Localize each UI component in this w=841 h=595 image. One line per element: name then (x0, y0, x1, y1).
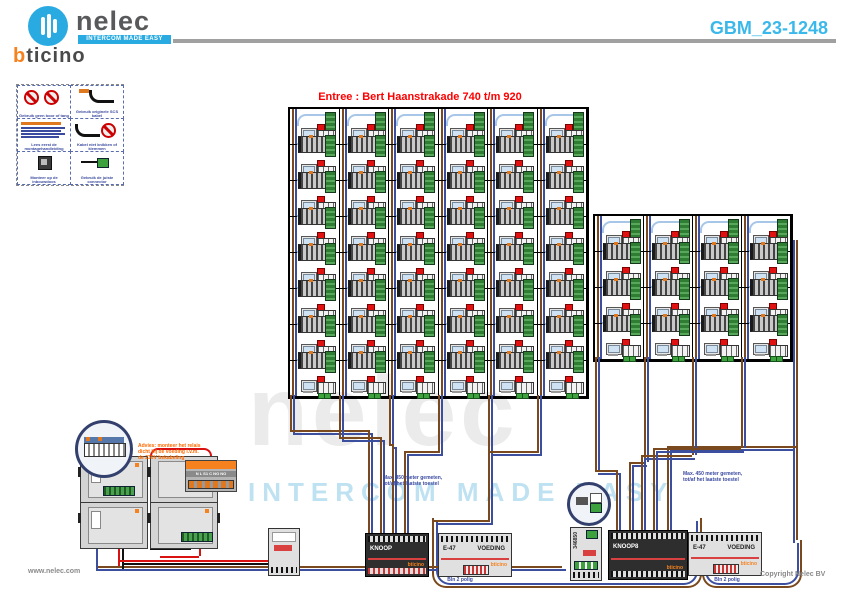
unit-pcb (573, 171, 584, 193)
unit-pcb (474, 315, 485, 337)
partner-brand-b: b (13, 45, 26, 67)
riser-wire-blue (394, 253, 396, 288)
floor-distributor (701, 315, 731, 332)
riser-wire-blue (543, 181, 545, 216)
power-supply-unit-3 (80, 502, 148, 549)
website-link: www.nelec.com (28, 568, 80, 575)
unit-pcb (325, 279, 336, 301)
floor-distributor (298, 280, 328, 297)
riser-wire-brown (441, 361, 443, 396)
monitor-base (402, 391, 412, 393)
partner-brand-rest: ticino (26, 45, 85, 67)
unit-pcb (573, 243, 584, 265)
monitor-screen (706, 345, 718, 353)
riser-wire-brown (292, 145, 294, 180)
legend-cell-no-kink: Kabel niet knikken of klemmen (70, 118, 124, 152)
riser-wire-brown (292, 217, 294, 252)
floor-distributor (701, 279, 731, 296)
riser-wire-blue (698, 324, 700, 359)
riser-wire-brown (391, 289, 393, 324)
unit-pcb (474, 279, 485, 301)
riser-wire-brown (597, 252, 599, 287)
riser-wire-brown (342, 181, 344, 216)
riser-wire-blue (493, 289, 495, 324)
nelec-logo-icon (28, 6, 68, 46)
unit-pcb (523, 135, 534, 157)
riser-wire-brown (342, 325, 344, 360)
green-terminal (473, 393, 480, 399)
monitor-base (608, 354, 618, 356)
riser-wire-brown (292, 253, 294, 288)
riser-wire-blue (543, 109, 545, 144)
unit-pcb (728, 278, 739, 300)
riser-wire-blue (698, 252, 700, 287)
floor-distributor (298, 172, 328, 189)
riser-wire-blue (295, 289, 297, 324)
unit-pcb (424, 207, 435, 229)
riser-wire-blue (345, 325, 347, 360)
riser-wire-blue (345, 289, 347, 324)
din-module-346850: 346850 (570, 527, 602, 581)
apartment-grid-left (288, 107, 589, 399)
green-terminal (423, 393, 430, 399)
unit-pcb (375, 351, 386, 373)
monitor-base (706, 354, 716, 356)
floor-distributor (447, 244, 477, 261)
riser-wire-blue (394, 289, 396, 324)
riser-wire-brown (441, 217, 443, 252)
unit-pcb (679, 314, 690, 336)
riser-wire-brown (646, 324, 648, 359)
floor-distributor (652, 243, 682, 260)
floor-distributor (348, 244, 378, 261)
riser-wire-brown (342, 217, 344, 252)
riser-wire-brown (292, 361, 294, 396)
riser-wire-brown (490, 217, 492, 252)
unit-pcb (523, 279, 534, 301)
floor-distributor (447, 172, 477, 189)
monitor-base (501, 391, 511, 393)
floor-distributor (496, 208, 526, 225)
riser-wire-brown (540, 361, 542, 396)
floor-distributor (397, 280, 427, 297)
riser-wire-blue (543, 289, 545, 324)
riser-wire-brown (490, 109, 492, 144)
apartment-grid-right (593, 214, 793, 362)
legend-cell-cable: Gebruik originele SCS kabel (70, 85, 124, 119)
riser-wire-brown (540, 145, 542, 180)
floor-distributor (348, 316, 378, 333)
riser-wire-brown (342, 145, 344, 180)
intercom-unit-cell (340, 361, 390, 397)
unit-pcb (375, 315, 386, 337)
floor-distributor (298, 244, 328, 261)
unit-pcb (325, 243, 336, 265)
unit-pcb (474, 351, 485, 373)
floor-distributor (652, 315, 682, 332)
intercom-unit-cell (595, 324, 644, 360)
intercom-unit-cell (538, 361, 588, 397)
e47-voeding-module-left: E-47 VOEDING bticino (438, 533, 512, 577)
floor-distributor (496, 136, 526, 153)
riser-wire-brown (540, 217, 542, 252)
riser-wire-brown (744, 252, 746, 287)
riser-wire-blue (649, 216, 651, 251)
riser-wire-brown (391, 145, 393, 180)
riser-wire-brown (292, 109, 294, 144)
unit-pcb (523, 207, 534, 229)
unit-pcb (777, 278, 788, 300)
riser-wire-brown (292, 181, 294, 216)
unit-pcb (679, 242, 690, 264)
riser-wire-blue (444, 181, 446, 216)
riser-wire-brown (744, 288, 746, 323)
riser-wire-brown (292, 325, 294, 360)
riser-wire-blue (295, 109, 297, 144)
floor-distributor (397, 136, 427, 153)
unit-pcb (424, 135, 435, 157)
riser-wire-blue (394, 145, 396, 180)
floor-distributor (546, 280, 576, 297)
riser-wire-brown (744, 324, 746, 359)
riser-wire-brown (490, 289, 492, 324)
floor-distributor (298, 352, 328, 369)
monitor-screen (303, 382, 315, 390)
floor-distributor (397, 316, 427, 333)
unit-pcb (424, 315, 435, 337)
unit-pcb (523, 315, 534, 337)
riser-wire-blue (394, 361, 396, 396)
riser-wire-brown (490, 361, 492, 396)
riser-wire-brown (391, 181, 393, 216)
riser-wire-brown (597, 216, 599, 251)
unit-pcb (728, 242, 739, 264)
unit-pcb (375, 171, 386, 193)
legend-cell-manual: Lees eerst de montagehandleiding (17, 118, 71, 152)
riser-wire-blue (444, 109, 446, 144)
intercom-unit-cell (693, 324, 742, 360)
floor-distributor (348, 136, 378, 153)
unit-pcb (375, 243, 386, 265)
riser-wire-blue (747, 288, 749, 323)
din-module-small (268, 528, 300, 576)
riser-wire-blue (295, 361, 297, 396)
monitor-screen (608, 345, 620, 353)
unit-pcb (523, 171, 534, 193)
riser-wire-blue (600, 252, 602, 287)
riser-wire-brown (540, 325, 542, 360)
unit-pcb (523, 351, 534, 373)
monitor-screen (353, 382, 365, 390)
riser-wire-blue (295, 253, 297, 288)
floor-distributor (603, 315, 633, 332)
riser-wire-blue (444, 145, 446, 180)
floor-distributor (496, 316, 526, 333)
riser-wire-brown (342, 289, 344, 324)
floor-distributor (701, 243, 731, 260)
unit-pcb (325, 207, 336, 229)
riser-wire-blue (493, 109, 495, 144)
e47-voeding-module-right: E-47 VOEDING bticino (688, 532, 762, 576)
unit-pcb (728, 314, 739, 336)
unit-pcb (679, 278, 690, 300)
unit-pcb (375, 279, 386, 301)
floor-distributor (546, 352, 576, 369)
unit-pcb (573, 351, 584, 373)
unit-pcb (630, 314, 641, 336)
riser-wire-brown (441, 145, 443, 180)
monitor-base (551, 391, 561, 393)
unit-pcb (474, 135, 485, 157)
intercom-unit-cell (290, 361, 340, 397)
unit-pcb (474, 171, 485, 193)
riser-wire-blue (295, 181, 297, 216)
riser-wire-blue (649, 252, 651, 287)
copyright-text: Copyright Nelec BV (760, 571, 825, 578)
riser-wire-blue (747, 216, 749, 251)
unit-pcb (424, 279, 435, 301)
riser-wire-brown (744, 216, 746, 251)
intercom-unit-cell (439, 361, 489, 397)
riser-wire-blue (493, 361, 495, 396)
floor-distributor (397, 352, 427, 369)
relay-terminal-labels: N L S1 C NO NO (186, 471, 236, 477)
riser-wire-blue (345, 217, 347, 252)
unit-pcb (375, 135, 386, 157)
monitor-base (657, 354, 667, 356)
riser-length-note-left: Max. 450 meter gemeten,tot/af het laatst… (383, 475, 442, 487)
floor-distributor (348, 172, 378, 189)
floor-distributor (496, 172, 526, 189)
green-terminal (374, 393, 381, 399)
riser-wire-blue (543, 253, 545, 288)
riser-wire-blue (394, 325, 396, 360)
floor-distributor (652, 279, 682, 296)
riser-wire-blue (295, 145, 297, 180)
unit-pcb (424, 171, 435, 193)
unit-pcb (573, 207, 584, 229)
brand-tagline: INTERCOM MADE EASY (78, 35, 171, 44)
floor-distributor (496, 280, 526, 297)
riser-wire-brown (490, 253, 492, 288)
riser-wire-blue (747, 252, 749, 287)
riser-wire-blue (345, 253, 347, 288)
floor-distributor (546, 244, 576, 261)
riser-wire-blue (345, 109, 347, 144)
unit-pcb (424, 243, 435, 265)
floor-distributor (348, 208, 378, 225)
riser-length-note-right: Max. 450 meter gemeten,tot/af het laatst… (683, 471, 742, 483)
riser-wire-brown (342, 253, 344, 288)
riser-wire-blue (394, 109, 396, 144)
floor-distributor (546, 208, 576, 225)
riser-wire-blue (444, 325, 446, 360)
floor-distributor (750, 279, 780, 296)
legend-cell-no-tools: Gebruik geen boor of tang (17, 85, 71, 119)
floor-distributor (750, 243, 780, 260)
installation-legend: Gebruik geen boor of tang Gebruik origin… (16, 84, 124, 186)
floor-distributor (447, 280, 477, 297)
riser-wire-brown (441, 253, 443, 288)
floor-distributor (447, 352, 477, 369)
floor-distributor (397, 172, 427, 189)
riser-wire-brown (391, 361, 393, 396)
drawing-title: Entree : Bert Haanstrakade 740 t/m 920 (230, 91, 610, 103)
floor-distributor (447, 136, 477, 153)
riser-wire-brown (646, 252, 648, 287)
partner-brand: bticino (13, 45, 86, 68)
riser-wire-brown (490, 181, 492, 216)
riser-wire-brown (441, 289, 443, 324)
intercom-unit-cell (488, 361, 538, 397)
riser-wire-brown (540, 289, 542, 324)
riser-wire-blue (493, 181, 495, 216)
unit-pcb (630, 242, 641, 264)
bus-caption-left: Bln 2 polig (420, 577, 500, 583)
intercom-unit-cell (742, 324, 791, 360)
green-terminal (572, 393, 579, 399)
riser-wire-brown (646, 288, 648, 323)
floor-distributor (546, 172, 576, 189)
monitor-screen (452, 382, 464, 390)
riser-wire-blue (600, 324, 602, 359)
riser-wire-blue (543, 325, 545, 360)
riser-wire-brown (391, 253, 393, 288)
floor-distributor (447, 316, 477, 333)
floor-distributor (298, 316, 328, 333)
riser-wire-blue (444, 217, 446, 252)
floor-distributor (397, 208, 427, 225)
riser-wire-brown (441, 109, 443, 144)
connector-detail-circle (567, 482, 611, 526)
riser-wire-brown (597, 324, 599, 359)
green-terminal (522, 393, 529, 399)
intercom-unit-cell (389, 361, 439, 397)
riser-wire-blue (345, 181, 347, 216)
unit-pcb (375, 207, 386, 229)
unit-pcb (325, 351, 336, 373)
riser-wire-blue (747, 324, 749, 359)
floor-distributor (348, 352, 378, 369)
relay-advice-note: Advies: monteer het relaisdicht bij de v… (138, 443, 201, 461)
green-terminal (629, 356, 636, 362)
riser-wire-brown (695, 324, 697, 359)
riser-wire-brown (540, 109, 542, 144)
terminal-detail-circle (75, 420, 133, 478)
riser-wire-brown (597, 288, 599, 323)
monitor-base (303, 391, 313, 393)
floor-distributor (750, 315, 780, 332)
riser-wire-blue (543, 145, 545, 180)
floor-distributor (496, 352, 526, 369)
green-terminal (324, 393, 331, 399)
riser-wire-brown (646, 216, 648, 251)
riser-wire-brown (695, 288, 697, 323)
monitor-base (452, 391, 462, 393)
legend-cell-mounting: Monteer op de inbouwdoos (17, 151, 71, 185)
unit-pcb (474, 207, 485, 229)
power-supply-unit-4 (150, 502, 218, 549)
unit-pcb (424, 351, 435, 373)
riser-wire-brown (342, 109, 344, 144)
unit-pcb (573, 315, 584, 337)
floor-distributor (496, 244, 526, 261)
document-number: GBM_23-1248 (560, 18, 828, 39)
riser-wire-brown (695, 252, 697, 287)
floor-distributor (546, 136, 576, 153)
monitor-base (755, 354, 765, 356)
riser-wire-brown (391, 109, 393, 144)
green-terminal (678, 356, 685, 362)
riser-wire-brown (342, 361, 344, 396)
riser-wire-blue (295, 325, 297, 360)
riser-wire-brown (540, 181, 542, 216)
unit-pcb (325, 135, 336, 157)
unit-pcb (474, 243, 485, 265)
riser-wire-blue (649, 288, 651, 323)
schematic-canvas: nelec INTERCOM MADE EASY bticino GBM_23-… (0, 0, 841, 595)
monitor-screen (755, 345, 767, 353)
monitor-screen (657, 345, 669, 353)
riser-wire-brown (441, 325, 443, 360)
unit-pcb (523, 243, 534, 265)
knoop8-module: KNOOP8 bticino (608, 530, 688, 580)
unit-pcb (325, 315, 336, 337)
header-rule (173, 39, 836, 43)
unit-pcb (777, 314, 788, 336)
riser-wire-blue (493, 217, 495, 252)
riser-wire-blue (345, 361, 347, 396)
riser-wire-brown (391, 217, 393, 252)
riser-wire-brown (490, 325, 492, 360)
riser-wire-blue (345, 145, 347, 180)
floor-distributor (603, 243, 633, 260)
floor-distributor (546, 316, 576, 333)
floor-distributor (298, 136, 328, 153)
floor-distributor (298, 208, 328, 225)
intercom-unit-cell (644, 324, 693, 360)
floor-distributor (348, 280, 378, 297)
riser-wire-blue (444, 253, 446, 288)
unit-pcb (573, 135, 584, 157)
riser-wire-blue (698, 288, 700, 323)
riser-wire-blue (295, 217, 297, 252)
bus-caption-right: Bln 2 polig (692, 577, 762, 583)
riser-wire-blue (493, 325, 495, 360)
relay-module: N L S1 C NO NO (185, 460, 237, 492)
riser-wire-blue (394, 217, 396, 252)
monitor-screen (551, 382, 563, 390)
brand-name: nelec (76, 6, 150, 37)
riser-wire-brown (441, 181, 443, 216)
riser-wire-blue (698, 216, 700, 251)
monitor-screen (402, 382, 414, 390)
riser-wire-brown (391, 325, 393, 360)
riser-wire-blue (394, 181, 396, 216)
riser-wire-brown (292, 289, 294, 324)
unit-pcb (325, 171, 336, 193)
monitor-screen (501, 382, 513, 390)
floor-distributor (447, 208, 477, 225)
riser-wire-blue (600, 288, 602, 323)
monitor-base (353, 391, 363, 393)
riser-wire-blue (444, 361, 446, 396)
riser-wire-blue (649, 324, 651, 359)
riser-wire-brown (490, 145, 492, 180)
riser-wire-blue (600, 216, 602, 251)
riser-wire-brown (695, 216, 697, 251)
unit-pcb (630, 278, 641, 300)
